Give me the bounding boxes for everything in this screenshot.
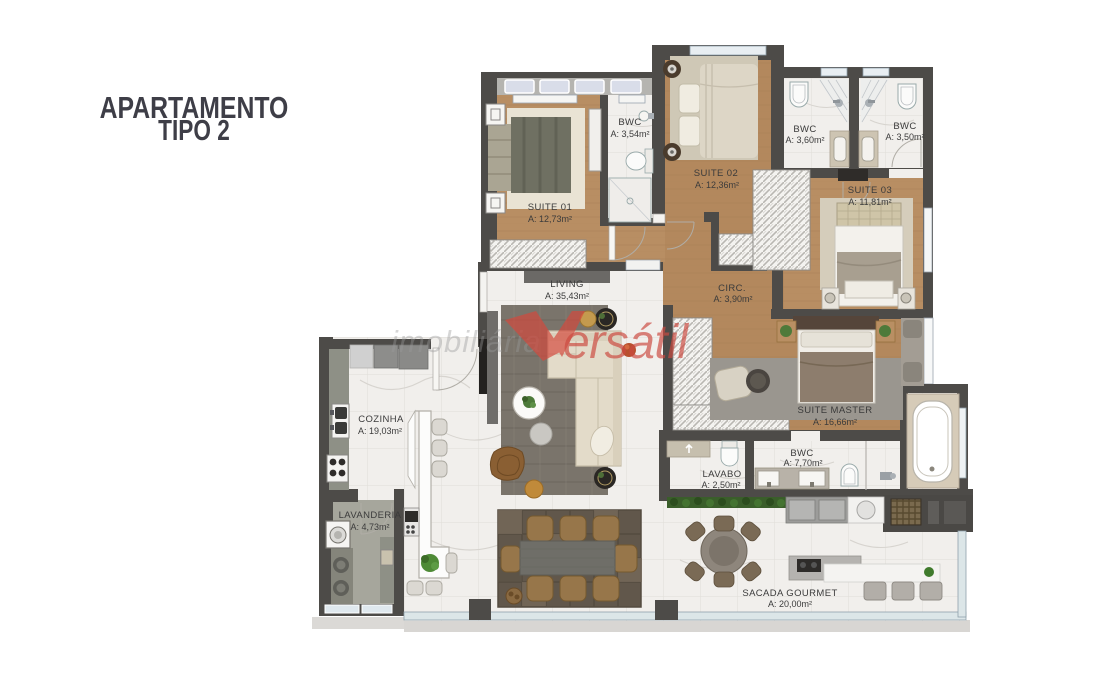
svg-text:A: 11,81m²: A: 11,81m²: [848, 197, 891, 207]
svg-text:A: 3,60m²: A: 3,60m²: [785, 135, 824, 145]
svg-text:A: 4,73m²: A: 4,73m²: [350, 522, 389, 532]
svg-text:A: 3,54m²: A: 3,54m²: [610, 129, 649, 139]
svg-text:SACADA GOURMET: SACADA GOURMET: [742, 588, 837, 599]
svg-text:LAVANDERIA: LAVANDERIA: [339, 510, 402, 521]
svg-text:A: 3,50m²: A: 3,50m²: [885, 132, 924, 142]
svg-text:TIPO 2: TIPO 2: [158, 113, 230, 146]
svg-text:A: 7,70m²: A: 7,70m²: [783, 458, 822, 468]
svg-text:SUITE 01: SUITE 01: [528, 202, 572, 213]
svg-text:BWC: BWC: [793, 124, 816, 135]
svg-text:A: 16,66m²: A: 16,66m²: [813, 417, 857, 427]
svg-text:COZINHA: COZINHA: [358, 414, 404, 425]
svg-text:SUITE 02: SUITE 02: [694, 168, 738, 179]
svg-text:CIRC.: CIRC.: [718, 283, 746, 294]
svg-text:A: 20,00m²: A: 20,00m²: [768, 599, 812, 609]
svg-text:LAVABO: LAVABO: [702, 469, 741, 480]
svg-text:A: 3,90m²: A: 3,90m²: [713, 294, 752, 304]
svg-text:SUITE MASTER: SUITE MASTER: [797, 405, 872, 416]
svg-text:A: 12,73m²: A: 12,73m²: [528, 214, 572, 224]
svg-text:A: 35,43m²: A: 35,43m²: [545, 291, 589, 301]
svg-text:LIVING: LIVING: [550, 279, 584, 290]
svg-text:A: 12,36m²: A: 12,36m²: [695, 180, 739, 190]
svg-text:SUITE 03: SUITE 03: [848, 185, 892, 196]
svg-text:BWC: BWC: [893, 121, 916, 132]
svg-text:A: 19,03m²: A: 19,03m²: [358, 426, 402, 436]
svg-text:BWC: BWC: [618, 117, 641, 128]
svg-text:ersátil: ersátil: [563, 316, 689, 369]
svg-text:A: 2,50m²: A: 2,50m²: [701, 480, 740, 490]
